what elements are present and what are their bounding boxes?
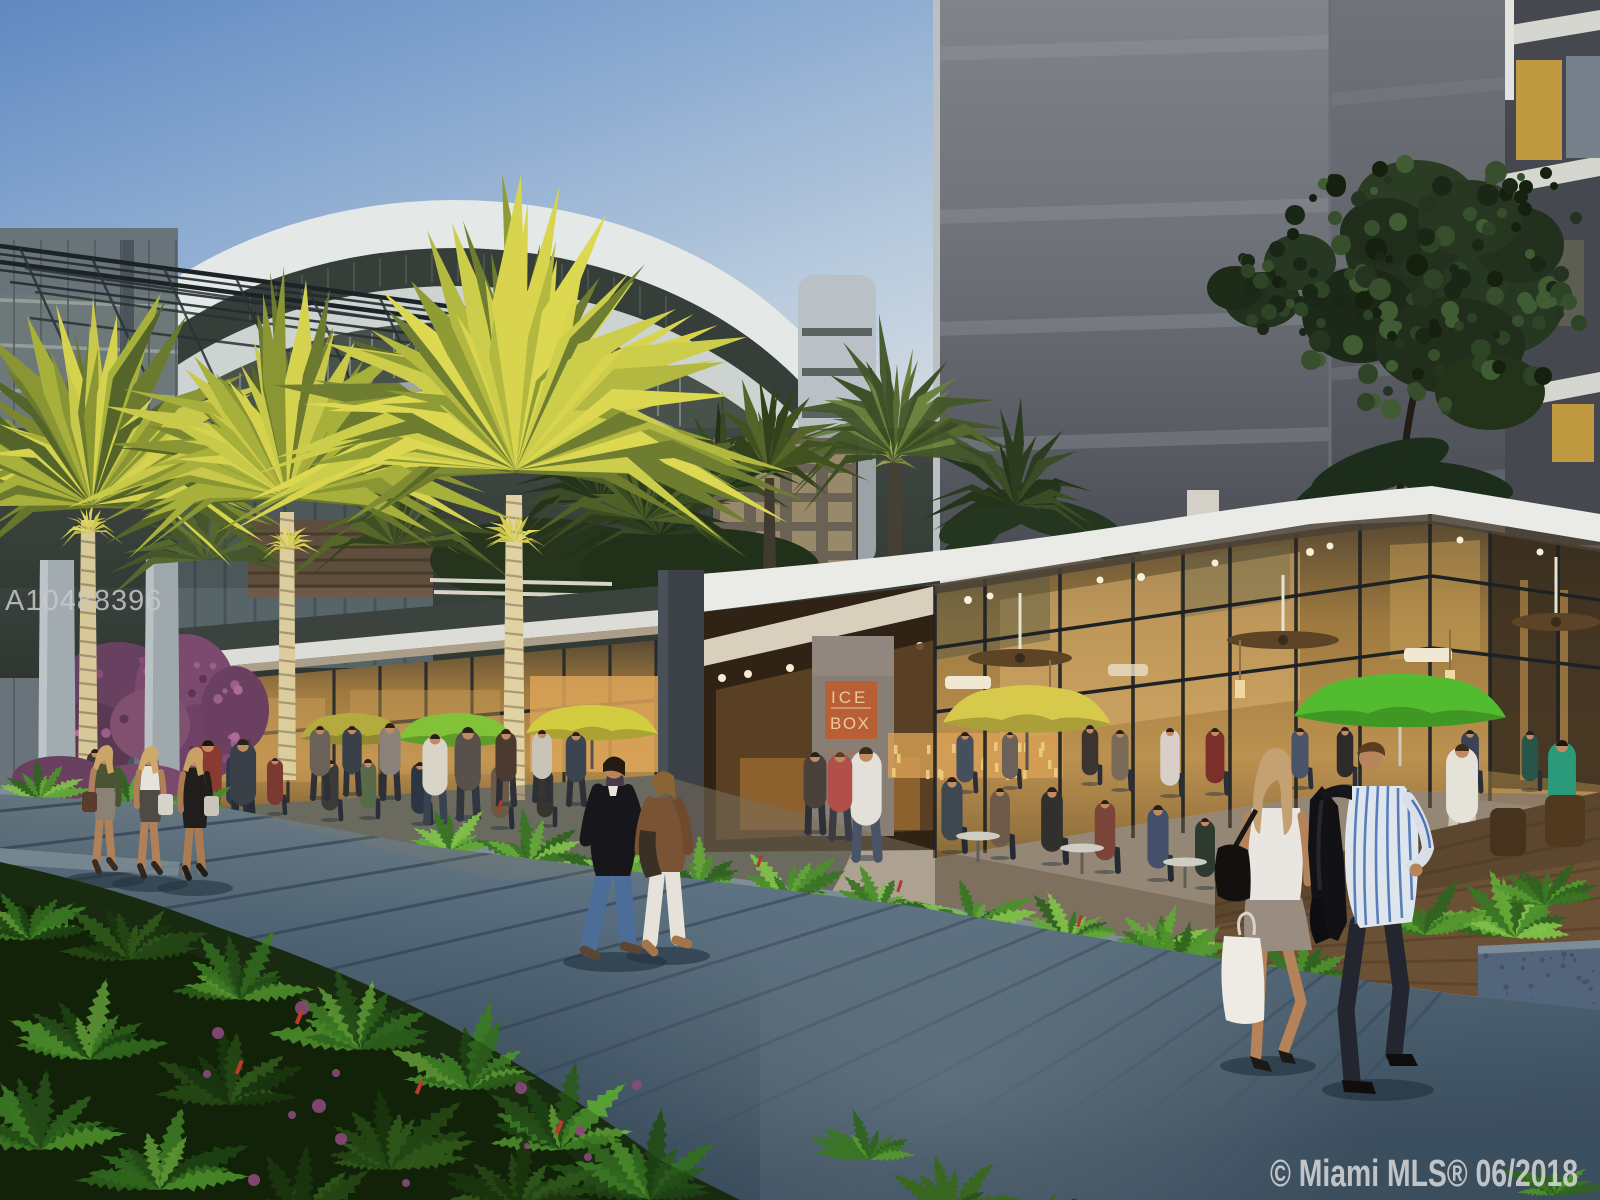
svg-text:ICE: ICE <box>831 688 868 707</box>
svg-text:© Miami MLS® 06/2018: © Miami MLS® 06/2018 <box>1270 1153 1578 1195</box>
svg-text:BOX: BOX <box>830 714 870 733</box>
svg-text:A10488396: A10488396 <box>5 585 162 617</box>
